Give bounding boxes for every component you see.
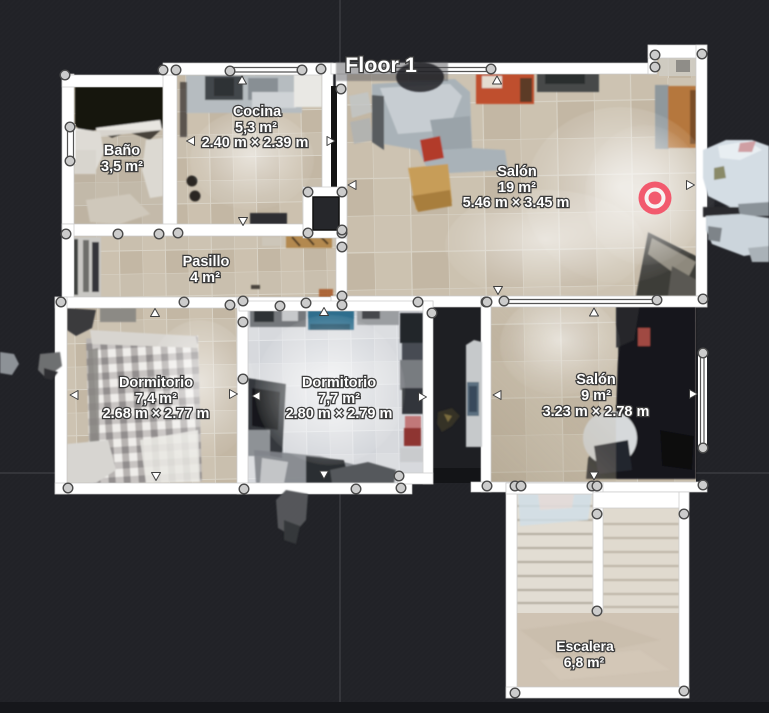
svg-text:2.40 m × 2.39 m: 2.40 m × 2.39 m — [202, 135, 309, 151]
svg-text:Cocina: Cocina — [233, 104, 282, 120]
svg-text:9 m²: 9 m² — [581, 388, 611, 404]
svg-text:7,7 m²: 7,7 m² — [318, 391, 360, 407]
svg-text:3,5 m²: 3,5 m² — [101, 159, 143, 175]
svg-text:4 m²: 4 m² — [190, 270, 220, 286]
svg-text:3.23 m × 2.78 m: 3.23 m × 2.78 m — [543, 404, 650, 420]
svg-text:2.68 m × 2.77 m: 2.68 m × 2.77 m — [103, 406, 210, 422]
svg-text:7,4 m²: 7,4 m² — [135, 391, 177, 407]
svg-text:Dormitorio: Dormitorio — [302, 375, 376, 391]
svg-text:Escalera: Escalera — [556, 638, 614, 654]
svg-text:Dormitorio: Dormitorio — [119, 375, 193, 391]
svg-text:Salón: Salón — [497, 164, 536, 180]
svg-text:5.46 m × 3.45 m: 5.46 m × 3.45 m — [463, 195, 570, 211]
svg-text:2.80 m × 2.79 m: 2.80 m × 2.79 m — [286, 406, 393, 422]
svg-text:Salón: Salón — [576, 372, 615, 388]
svg-text:6,8 m²: 6,8 m² — [564, 654, 605, 670]
svg-text:5,3 m²: 5,3 m² — [235, 120, 277, 136]
svg-text:Floor 1: Floor 1 — [345, 53, 417, 77]
svg-text:Pasillo: Pasillo — [183, 254, 230, 270]
svg-text:19 m²: 19 m² — [498, 180, 536, 196]
svg-text:Baño: Baño — [104, 143, 140, 159]
